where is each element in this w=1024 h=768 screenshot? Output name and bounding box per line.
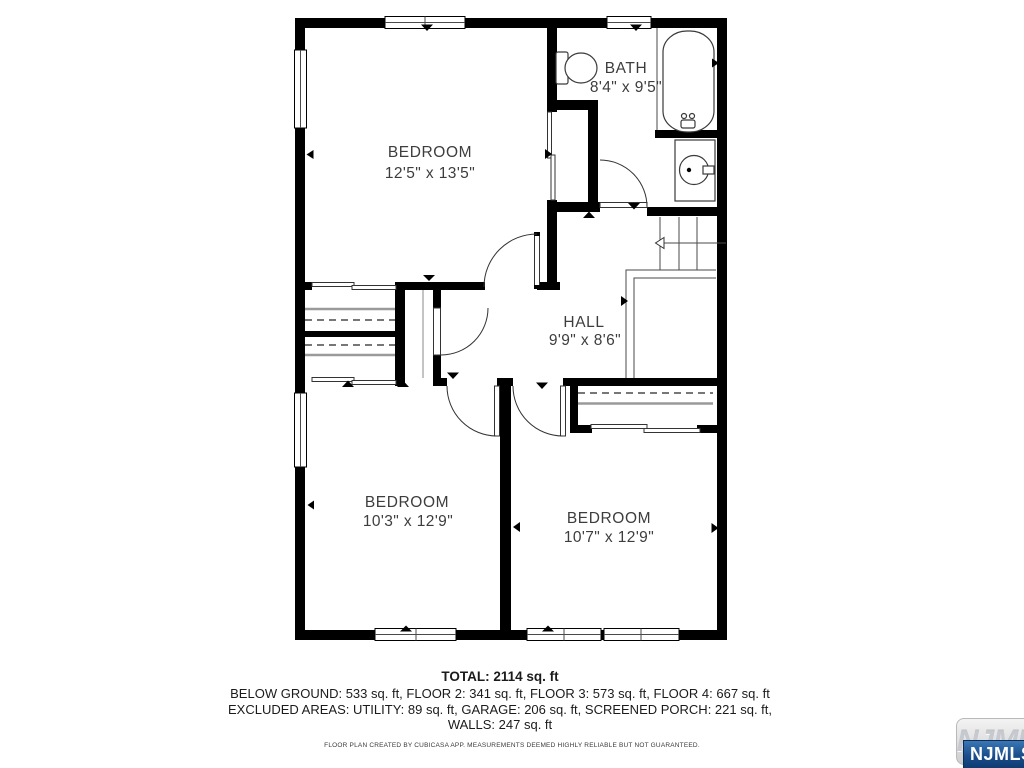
closet-left-upper <box>305 283 396 321</box>
floor-areas-text: BELOW GROUND: 533 sq. ft, FLOOR 2: 341 s… <box>0 686 1000 702</box>
room-label-hall: HALL <box>563 314 604 331</box>
floor-plan-page: BEDROOM 12'5" x 13'5" BATH 8'4" x 9'5" H… <box>0 0 1024 768</box>
windows <box>295 17 680 641</box>
area-summary: TOTAL: 2114 sq. ft BELOW GROUND: 533 sq.… <box>0 669 1000 733</box>
room-dims-bath: 8'4" x 9'5" <box>590 79 662 96</box>
room-dims-bedroom3: 10'7" x 12'9" <box>564 529 654 546</box>
disclaimer-text: FLOOR PLAN CREATED BY CUBICASA APP. MEAS… <box>0 742 1024 749</box>
room-dims-bedroom1: 12'5" x 13'5" <box>385 165 475 182</box>
sink-vanity <box>675 140 715 201</box>
njmls-badge-logo: NJMLS <box>963 740 1024 768</box>
floor-plan-drawing: BEDROOM 12'5" x 13'5" BATH 8'4" x 9'5" H… <box>0 0 1024 768</box>
door-linen-closet <box>434 308 489 355</box>
room-label-bath: BATH <box>605 60 648 77</box>
excluded-areas-text: EXCLUDED AREAS: UTILITY: 89 sq. ft, GARA… <box>0 702 1000 718</box>
door-bedroom1 <box>484 232 540 289</box>
closet-left-lower <box>305 345 396 385</box>
closet-bedroom-right <box>578 393 713 433</box>
walls-area-text: WALLS: 247 sq. ft <box>0 717 1000 733</box>
walls <box>295 18 727 640</box>
room-dims-bedroom2: 10'3" x 12'9" <box>363 513 453 530</box>
room-labels: BEDROOM 12'5" x 13'5" BATH 8'4" x 9'5" H… <box>363 60 662 546</box>
door-bath <box>600 160 647 208</box>
total-area-text: TOTAL: 2114 sq. ft <box>0 669 1000 684</box>
room-label-bedroom3: BEDROOM <box>567 510 651 527</box>
room-label-bedroom1: BEDROOM <box>388 144 472 161</box>
bathtub <box>657 28 714 132</box>
door-bedroom-lower-left <box>447 386 500 436</box>
door-bedroom-lower-right <box>513 386 566 436</box>
room-dims-hall: 9'9" x 8'6" <box>549 332 621 349</box>
stairs <box>626 217 726 378</box>
room-label-bedroom2: BEDROOM <box>365 494 449 511</box>
